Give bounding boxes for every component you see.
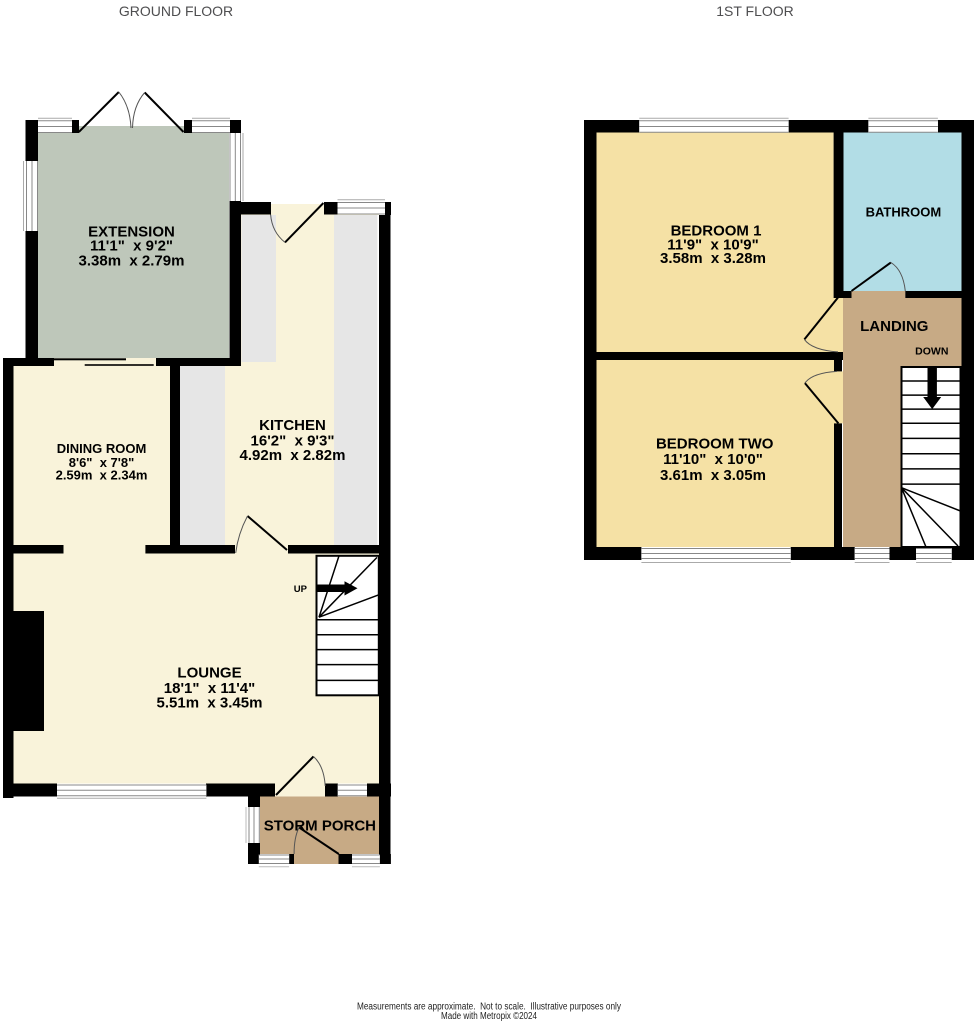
svg-text:DOWN: DOWN: [915, 346, 948, 358]
svg-text:DINING ROOM: DINING ROOM: [57, 441, 147, 456]
svg-text:3.61m x 3.05m: 3.61m x 3.05m: [660, 467, 766, 484]
svg-text:5.51m x 3.45m: 5.51m x 3.45m: [157, 695, 263, 712]
svg-text:LANDING: LANDING: [860, 318, 928, 335]
svg-text:1ST FLOOR: 1ST FLOOR: [716, 3, 794, 19]
svg-text:STORM PORCH: STORM PORCH: [264, 818, 376, 835]
svg-text:4.92m x 2.82m: 4.92m x 2.82m: [240, 447, 346, 464]
svg-text:BEDROOM TWO: BEDROOM TWO: [656, 435, 774, 452]
svg-text:UP: UP: [294, 584, 308, 595]
svg-text:2.59m x 2.34m: 2.59m x 2.34m: [56, 467, 148, 482]
svg-text:GROUND FLOOR: GROUND FLOOR: [119, 3, 233, 19]
svg-text:Made with Metropix ©2024: Made with Metropix ©2024: [441, 1011, 537, 1022]
svg-text:3.58m x 3.28m: 3.58m x 3.28m: [660, 250, 766, 267]
svg-text:3.38m x 2.79m: 3.38m x 2.79m: [79, 253, 185, 270]
svg-text:11'10" x 10'0": 11'10" x 10'0": [663, 451, 763, 468]
svg-text:BATHROOM: BATHROOM: [866, 204, 942, 219]
